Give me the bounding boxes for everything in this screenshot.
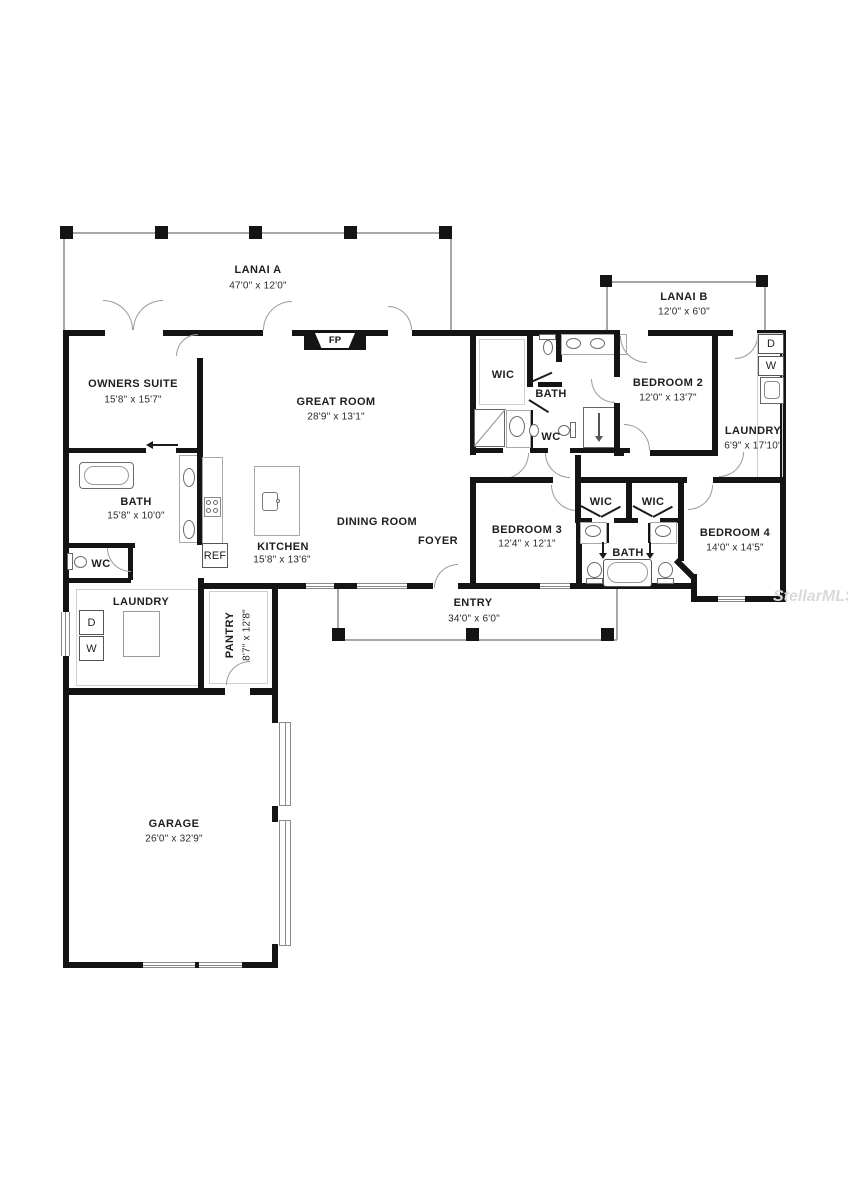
washer-label: W (766, 360, 776, 372)
wall (527, 330, 533, 387)
wall (648, 330, 733, 336)
fireplace-label: FP (329, 335, 341, 346)
bedroom3-window (540, 583, 570, 589)
room-dims-entry: 34'0" x 6'0" (448, 614, 500, 625)
porch-column (601, 628, 614, 641)
wall (272, 583, 278, 695)
room-label-wc: WC (91, 558, 110, 570)
wc-door (107, 548, 131, 572)
french-door (103, 300, 133, 330)
toilet-tank (586, 578, 603, 584)
wall (334, 583, 357, 589)
wall (63, 656, 69, 968)
wall (614, 403, 620, 455)
wall (197, 358, 203, 453)
kitchen-window (306, 583, 334, 589)
lanai-b-outline (606, 281, 766, 283)
toilet (587, 562, 602, 578)
bedroom4-door (688, 485, 713, 510)
french-door (133, 300, 163, 330)
laundry-sink-basin (764, 381, 780, 399)
room-dims-laundry-right: 6'9" x 17'10" (724, 441, 781, 452)
toilet-tank (657, 578, 674, 584)
refrigerator-label: REF (204, 550, 227, 562)
room-label-dining: DINING ROOM (337, 516, 417, 528)
room-label-wic3: WIC (590, 496, 613, 508)
room-label-bedroom4: BEDROOM 4 (700, 527, 770, 539)
laundry-island (123, 611, 160, 657)
porch-column (466, 628, 479, 641)
wall (63, 330, 69, 613)
room-label-wic4: WIC (642, 496, 665, 508)
room-label-great-room: GREAT ROOM (297, 396, 376, 408)
porch-column (155, 226, 168, 239)
room-dims-bedroom4: 14'0" x 14'5" (706, 543, 763, 554)
room-label-owners-bath: BATH (120, 496, 151, 508)
sink (183, 520, 195, 539)
toilet-tank (67, 553, 73, 570)
sink (590, 338, 605, 349)
room-label-lanai-a: LANAI A (235, 264, 282, 276)
wall (470, 448, 503, 453)
wall (538, 382, 562, 387)
room-dims-bedroom3: 12'4" x 12'1" (498, 539, 555, 550)
garage-door (279, 722, 291, 806)
wall (691, 596, 718, 602)
wall (650, 450, 718, 456)
burner (213, 500, 218, 505)
dryer-label: D (88, 617, 96, 629)
porch-column (439, 226, 452, 239)
wall (63, 578, 131, 583)
room-label-entry: ENTRY (454, 597, 493, 609)
sink (585, 525, 601, 537)
wall (198, 583, 306, 589)
porch-column (249, 226, 262, 239)
bedroom2-door (624, 424, 650, 450)
bathtub-basin (607, 562, 648, 583)
sink (655, 525, 671, 537)
wall (272, 806, 278, 822)
wall (198, 578, 204, 690)
wall (678, 477, 684, 523)
wall (470, 477, 553, 483)
faucet (276, 499, 280, 503)
wall (63, 688, 225, 695)
wall (407, 583, 433, 589)
lanai-b-outline (764, 281, 766, 330)
lanai-a-outline (450, 232, 452, 330)
room-label-bath-shared: BATH (612, 547, 643, 559)
room-dims-lanai-a: 47'0" x 12'0" (229, 281, 286, 292)
room-dims-owners-bath: 15'8" x 10'0" (107, 511, 164, 522)
hall-door (503, 453, 529, 479)
toilet (543, 340, 553, 355)
refrigerator: REF (202, 543, 228, 568)
room-dims-bedroom2: 12'0" x 13'7" (639, 393, 696, 404)
wall (575, 455, 581, 523)
owners-suite-door (176, 334, 198, 356)
wall (272, 695, 278, 723)
wall (250, 688, 278, 695)
washer-label: W (86, 643, 96, 655)
room-label-garage: GARAGE (149, 818, 200, 830)
lanai-b-door (735, 336, 758, 359)
front-door (434, 564, 458, 588)
lanai-a-outline (63, 232, 65, 330)
burner (206, 500, 211, 505)
shower-arrow-head (595, 436, 603, 442)
pocket-door-arrow (152, 444, 178, 446)
pocket-door-arrow-head (146, 441, 153, 449)
room-dims-lanai-b: 12'0" x 6'0" (658, 307, 710, 318)
wall (712, 330, 718, 452)
porch-column (60, 226, 73, 239)
wall (163, 330, 263, 336)
room-dims-pantry: 8'7" x 12'8" (242, 609, 253, 661)
toilet (658, 562, 673, 578)
shower-arrow-stem (598, 413, 600, 437)
room-label-owners-suite: OWNERS SUITE (88, 378, 178, 390)
wall (614, 518, 638, 523)
lanai-a-door (263, 301, 292, 330)
floor-plan: FP D W REF (0, 0, 848, 1200)
burner (213, 508, 218, 513)
dryer-label: D (767, 338, 775, 350)
wall (63, 330, 105, 336)
washer: W (79, 636, 104, 661)
wall (626, 477, 632, 523)
sink (183, 468, 195, 487)
laundry-window (61, 612, 70, 656)
washer: W (758, 356, 784, 376)
sink (566, 338, 581, 349)
bathtub-basin (84, 466, 129, 485)
hall-door (545, 453, 570, 478)
room-label-kitchen: KITCHEN (257, 541, 309, 553)
room-label-laundry-left: LAUNDRY (113, 596, 169, 608)
room-label-wic-mid: WIC (492, 369, 515, 381)
wall (713, 477, 786, 483)
lanai-b-door (620, 336, 647, 363)
room-label-foyer: FOYER (418, 535, 458, 547)
toilet (74, 556, 87, 568)
porch-column (600, 275, 612, 287)
room-label-bedroom2: BEDROOM 2 (633, 377, 703, 389)
bedroom4-window (718, 596, 745, 602)
porch-column (332, 628, 345, 641)
sink (529, 424, 539, 437)
bedroom2-bath-door (591, 379, 615, 403)
room-dims-kitchen: 15'8" x 13'6" (253, 555, 310, 566)
sink (509, 416, 525, 437)
porch-column (756, 275, 768, 287)
laundry-door (719, 452, 744, 477)
wall (470, 477, 476, 588)
dryer: D (79, 610, 104, 635)
wall (242, 962, 278, 968)
room-dims-great-room: 28'9" x 13'1" (307, 412, 364, 423)
room-label-bath-mid: BATH (535, 388, 566, 400)
lanai-b-outline (606, 281, 608, 330)
room-label-lanai-b: LANAI B (660, 291, 707, 303)
room-label-pantry: PANTRY (224, 612, 236, 658)
garage-door (279, 820, 291, 946)
dryer: D (758, 334, 784, 354)
lanai-a-door (388, 306, 412, 330)
porch-column (344, 226, 357, 239)
room-dims-owners-suite: 15'8" x 15'7" (104, 395, 161, 406)
bedroom3-door (551, 485, 577, 511)
room-label-bedroom3: BEDROOM 3 (492, 524, 562, 536)
wall (678, 523, 684, 561)
dining-window (357, 583, 407, 589)
garage-window (199, 962, 242, 968)
room-label-laundry-right: LAUNDRY (725, 425, 781, 437)
garage-window (143, 962, 195, 968)
wall (63, 448, 197, 453)
entry-porch-outline (616, 589, 618, 640)
fireplace: FP (315, 333, 355, 348)
wall (366, 330, 388, 336)
stellar-mls-watermark: StellarMLS (773, 588, 848, 606)
wall (63, 962, 143, 968)
wall (614, 450, 624, 456)
burner (206, 508, 211, 513)
room-label-wc-mid: WC (541, 431, 560, 443)
toilet-tank (570, 422, 576, 438)
room-dims-garage: 26'0" x 32'9" (145, 834, 202, 845)
